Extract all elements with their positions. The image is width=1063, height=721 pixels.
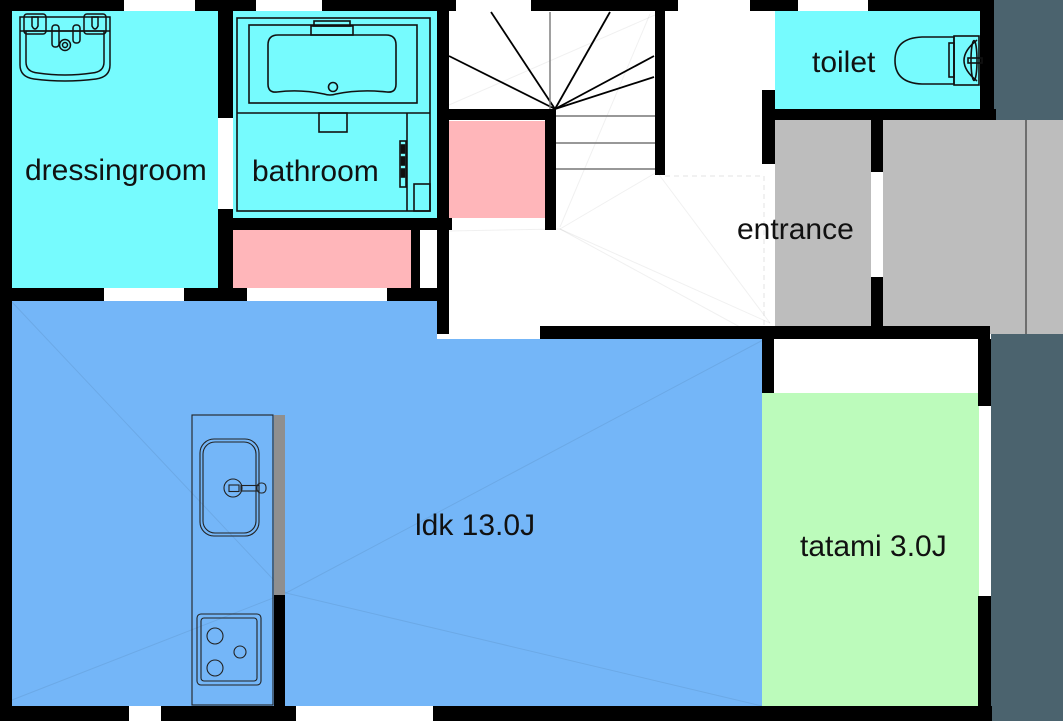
- svg-text:toilet: toilet: [812, 46, 876, 79]
- svg-text:ldk 13.0J: ldk 13.0J: [415, 509, 535, 542]
- svg-text:entrance: entrance: [737, 213, 854, 246]
- svg-text:bathroom: bathroom: [252, 155, 379, 188]
- svg-text:dressingroom: dressingroom: [25, 154, 207, 187]
- svg-text:tatami 3.0J: tatami 3.0J: [800, 530, 947, 563]
